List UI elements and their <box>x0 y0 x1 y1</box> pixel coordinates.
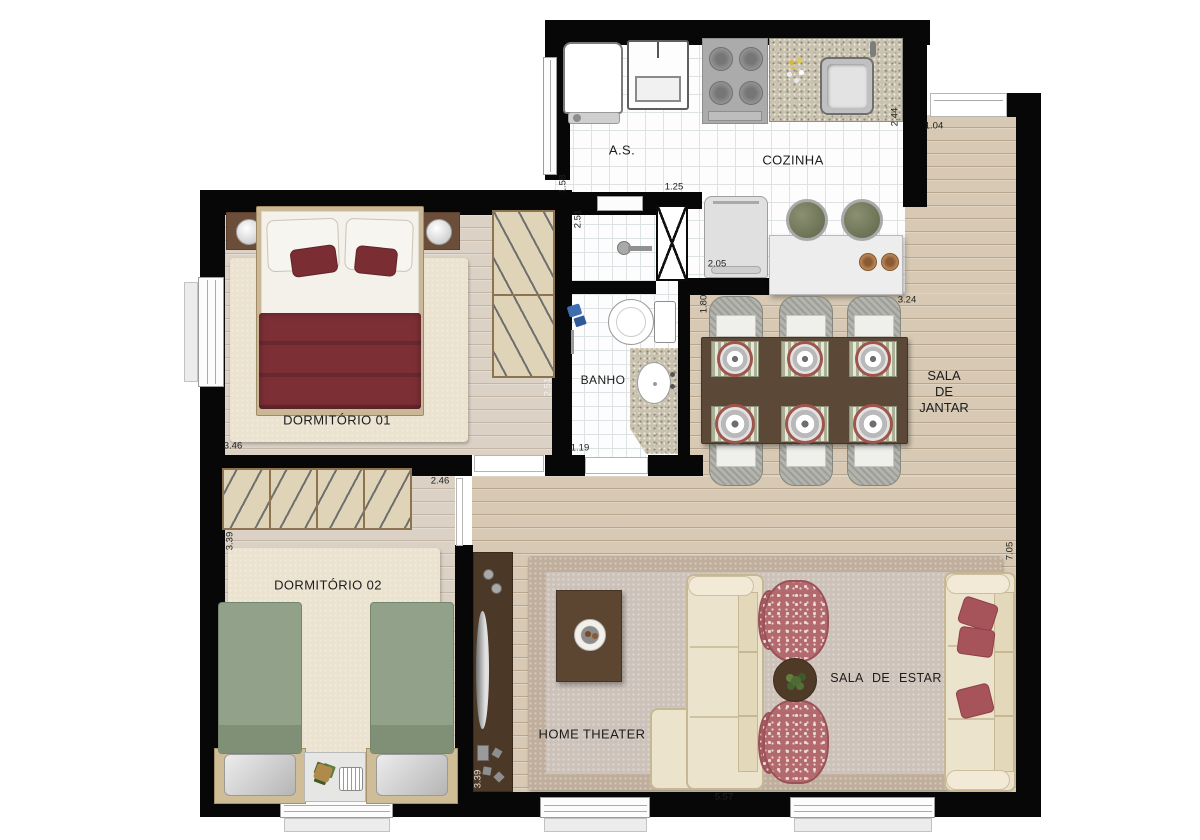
laundry-tank <box>627 40 689 110</box>
room-label-kitchen: COZINHA <box>762 153 823 168</box>
wall-bath-right <box>678 280 690 455</box>
double-bed <box>256 206 424 416</box>
measurement: 1.58 <box>558 175 569 194</box>
service-window <box>543 57 557 175</box>
side-table <box>773 658 817 702</box>
av-equipment-icon <box>493 771 504 782</box>
shower-arm <box>628 246 652 251</box>
lamp-icon <box>426 219 452 245</box>
basket-icon <box>339 767 363 791</box>
placemat <box>849 341 897 377</box>
placemat <box>711 406 759 442</box>
measurement: 2.51 <box>543 378 554 397</box>
dining-chair <box>847 442 901 486</box>
armchair <box>763 580 829 662</box>
measurement: 1.04 <box>925 121 944 132</box>
dining-chair <box>779 296 833 340</box>
room-label-bathroom: BANHO <box>581 373 626 387</box>
floor-plan: A.S. COZINHA BANHO DORMITÓRIO 01 DORMITÓ… <box>0 0 1200 840</box>
living-window-1 <box>540 797 650 818</box>
wall-outer-right <box>1016 93 1041 817</box>
window-sill <box>794 818 932 832</box>
sofa-back-cushions <box>738 592 758 772</box>
room-label-bedroom1: DORMITÓRIO 01 <box>283 413 391 428</box>
dining-chair <box>709 296 763 340</box>
av-equipment-icon <box>477 745 489 761</box>
entry-door <box>930 93 1007 117</box>
bowl-icon <box>574 619 606 651</box>
plant-pot-icon <box>313 763 334 784</box>
blanket <box>259 313 421 409</box>
single-bed-mattress <box>370 602 454 754</box>
sofa-armrest <box>688 576 754 596</box>
toilet <box>654 301 676 343</box>
armchair <box>763 700 829 784</box>
placemat <box>849 406 897 442</box>
dining-chair <box>709 442 763 486</box>
plant-icon <box>791 676 801 686</box>
bedroom1-window <box>198 277 224 387</box>
kitchen-counter <box>769 38 903 122</box>
window-sill <box>284 818 390 832</box>
shaft-box <box>656 205 688 281</box>
tv-icon <box>476 611 489 729</box>
pillow <box>224 754 296 796</box>
bathroom-sink-counter <box>630 348 678 454</box>
bowl-icon <box>881 253 899 271</box>
bathroom-door <box>585 457 648 474</box>
wall-bath-left <box>552 215 572 455</box>
nightstand <box>304 752 366 802</box>
pillow <box>376 754 448 796</box>
towel-rail <box>571 330 574 354</box>
stove <box>702 38 768 124</box>
bar-stool <box>841 199 883 241</box>
measurement: 3.24 <box>898 295 917 306</box>
measurement: 1.19 <box>571 443 590 454</box>
bowl-icon <box>859 253 877 271</box>
placemat <box>781 406 829 442</box>
accent-pillow <box>956 626 996 659</box>
measurement: 3.46 <box>224 441 243 452</box>
av-equipment-icon <box>492 748 503 759</box>
tv-unit <box>473 552 513 792</box>
measurement: 2.05 <box>708 259 727 270</box>
speaker-icon <box>491 583 502 594</box>
room-label-service: A.S. <box>609 143 635 158</box>
wall-entry-right <box>1005 93 1041 117</box>
toilet-bowl <box>608 299 654 345</box>
window-sill <box>544 818 647 832</box>
wardrobe <box>492 210 555 378</box>
measurement: 7.05 <box>1005 542 1016 561</box>
washing-machine <box>563 42 623 114</box>
measurement: 5.57 <box>715 792 734 803</box>
wall-fridge-stub <box>688 278 770 295</box>
sofa-back-cushions <box>994 592 1014 772</box>
wall-mid-bath-right <box>648 455 703 476</box>
wall-shower-divider <box>552 281 656 294</box>
faucet-icon <box>670 372 675 377</box>
measurement: 3.39 <box>225 532 236 551</box>
breakfast-bar <box>769 235 903 295</box>
faucet-icon <box>870 41 876 57</box>
measurement: 1.80 <box>699 295 710 314</box>
placemat <box>711 341 759 377</box>
bath-vent <box>597 196 643 211</box>
single-bed-mattress <box>218 602 302 754</box>
measurement: 2.51 <box>573 210 584 229</box>
accent-pillow <box>354 245 399 277</box>
dining-chair <box>779 442 833 486</box>
speaker-icon <box>483 569 494 580</box>
room-label-living: SALA DE ESTAR <box>830 671 942 685</box>
sofa-armrest <box>946 770 1010 790</box>
measurement: 1.25 <box>665 182 684 193</box>
coffee-table <box>556 590 622 682</box>
bedroom2-door <box>456 478 463 546</box>
measurement: 2.44 <box>890 108 901 127</box>
flowers-icon <box>792 67 795 70</box>
dining-chair <box>847 296 901 340</box>
placemat <box>781 341 829 377</box>
measurement: 2.46 <box>431 476 450 487</box>
window-sill <box>184 282 198 382</box>
av-equipment-icon <box>482 766 491 775</box>
bar-stool <box>786 199 828 241</box>
wardrobe <box>222 468 412 530</box>
room-label-home-theater: HOME THEATER <box>539 727 646 742</box>
living-window-2 <box>790 797 935 818</box>
wall-mid-bath-left <box>545 455 585 476</box>
room-label-dining: SALA DE JANTAR <box>919 368 969 416</box>
wall-kitchen-right <box>903 45 927 207</box>
measurement: 3.39 <box>473 770 484 789</box>
room-label-bedroom2: DORMITÓRIO 02 <box>274 578 382 593</box>
sofa-armrest <box>946 574 1010 594</box>
bedroom1-door <box>474 455 544 472</box>
